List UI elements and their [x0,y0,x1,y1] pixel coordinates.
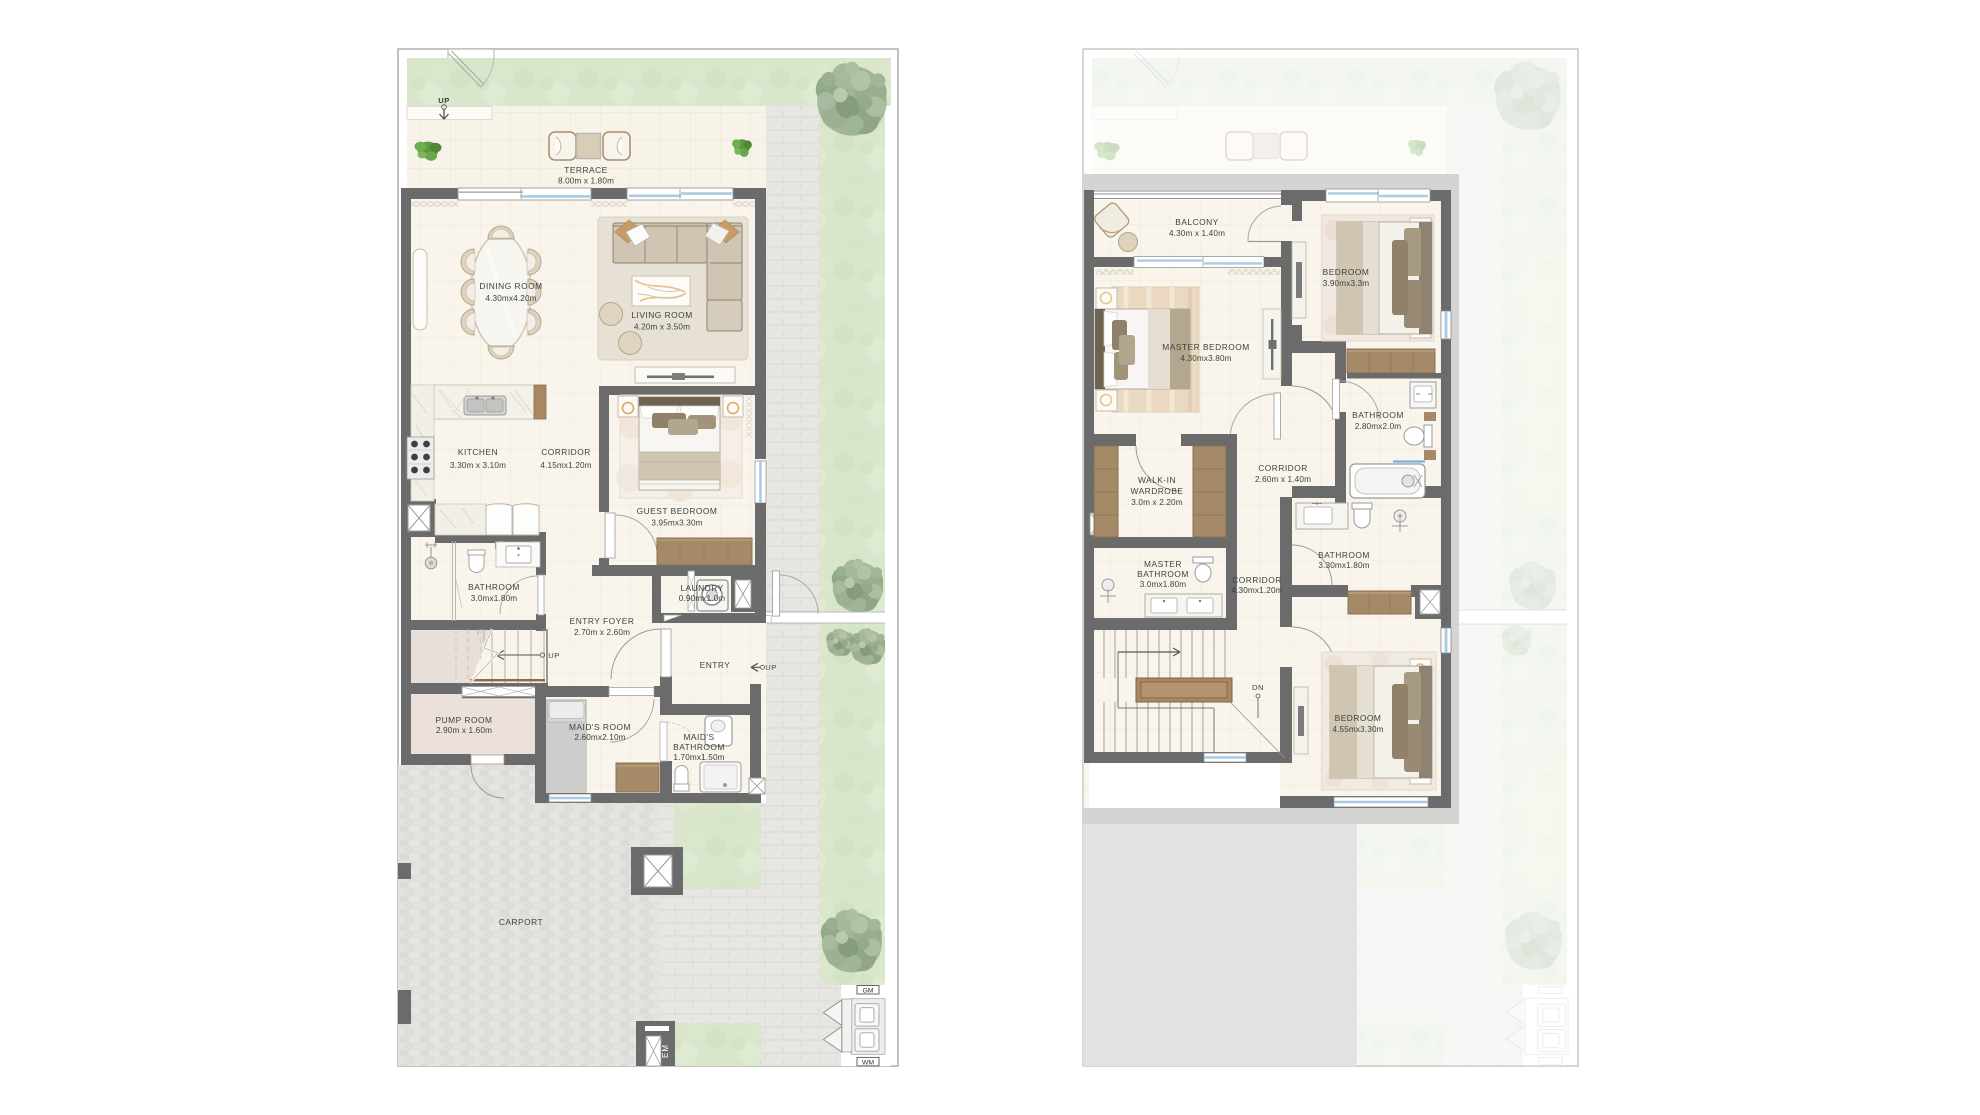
svg-text:UP: UP [765,663,777,672]
svg-text:BATHROOM: BATHROOM [1318,550,1370,560]
svg-text:BATHROOM: BATHROOM [1352,410,1404,420]
svg-text:3.0mx1.80m: 3.0mx1.80m [1140,580,1187,589]
svg-text:3.0mx1.80m: 3.0mx1.80m [471,594,518,603]
svg-text:BATHROOM: BATHROOM [1137,569,1189,579]
svg-text:4.30m x 1.40m: 4.30m x 1.40m [1169,229,1225,238]
svg-text:DN: DN [1252,683,1264,692]
svg-text:MASTER: MASTER [1144,559,1182,569]
svg-text:CORRIDOR: CORRIDOR [541,447,591,457]
svg-text:LAUNDRY: LAUNDRY [680,583,723,593]
svg-text:3.90mx3.3m: 3.90mx3.3m [1323,279,1370,288]
svg-text:BEDROOM: BEDROOM [1335,713,1382,723]
svg-text:4.30mx3.80m: 4.30mx3.80m [1180,354,1231,363]
svg-text:DINING ROOM: DINING ROOM [479,281,542,291]
svg-text:CORRIDOR: CORRIDOR [1258,463,1308,473]
svg-text:GM: GM [863,988,874,995]
svg-text:1.70mx1.50m: 1.70mx1.50m [673,753,724,762]
svg-text:WM: WM [862,1059,874,1066]
svg-text:4.30mx1.20m: 4.30mx1.20m [1231,586,1282,595]
svg-text:EM: EM [661,1044,670,1058]
svg-text:UP: UP [438,96,450,105]
svg-text:4.55mx3.30m: 4.55mx3.30m [1332,725,1383,734]
svg-text:ENTRY: ENTRY [700,660,731,670]
svg-text:8.00m x 1.80m: 8.00m x 1.80m [558,177,614,186]
svg-text:UP: UP [548,651,560,660]
svg-text:3.0m x 2.20m: 3.0m x 2.20m [1131,498,1182,507]
svg-text:3.30m x 3.10m: 3.30m x 3.10m [450,461,506,470]
svg-text:2.60m x 1.40m: 2.60m x 1.40m [1255,475,1311,484]
svg-text:3.95mx3.30m: 3.95mx3.30m [651,519,702,528]
svg-text:4.15mx1.20m: 4.15mx1.20m [540,461,591,470]
svg-text:BALCONY: BALCONY [1175,217,1219,227]
svg-text:CARPORT: CARPORT [499,917,543,927]
svg-text:WALK-IN: WALK-IN [1138,475,1176,485]
svg-text:BATHROOM: BATHROOM [673,742,725,752]
svg-text:MAID'S ROOM: MAID'S ROOM [569,722,631,732]
svg-text:BEDROOM: BEDROOM [1323,267,1370,277]
svg-text:GUEST BEDROOM: GUEST BEDROOM [637,506,718,516]
svg-text:3.30mx1.80m: 3.30mx1.80m [1318,561,1369,570]
svg-text:WARDROBE: WARDROBE [1130,486,1183,496]
svg-text:ENTRY FOYER: ENTRY FOYER [570,616,635,626]
svg-text:KITCHEN: KITCHEN [458,447,498,457]
svg-text:2.70m x 2.60m: 2.70m x 2.60m [574,628,630,637]
svg-text:PUMP ROOM: PUMP ROOM [436,715,493,725]
svg-text:LIVING ROOM: LIVING ROOM [631,310,692,320]
svg-text:0.90mx1.0m: 0.90mx1.0m [679,594,726,603]
svg-text:TERRACE: TERRACE [564,165,608,175]
svg-text:4.20m x 3.50m: 4.20m x 3.50m [634,323,690,332]
svg-text:2.90m x 1.60m: 2.90m x 1.60m [436,726,492,735]
svg-text:4.30mx4.20m: 4.30mx4.20m [485,294,536,303]
svg-text:MASTER BEDROOM: MASTER BEDROOM [1162,342,1250,352]
svg-text:CORRIDOR: CORRIDOR [1232,575,1282,585]
svg-text:BATHROOM: BATHROOM [468,582,520,592]
svg-text:MAID'S: MAID'S [683,732,714,742]
svg-text:2.80mx2.0m: 2.80mx2.0m [1355,422,1402,431]
svg-text:2.60mx2.10m: 2.60mx2.10m [574,733,625,742]
